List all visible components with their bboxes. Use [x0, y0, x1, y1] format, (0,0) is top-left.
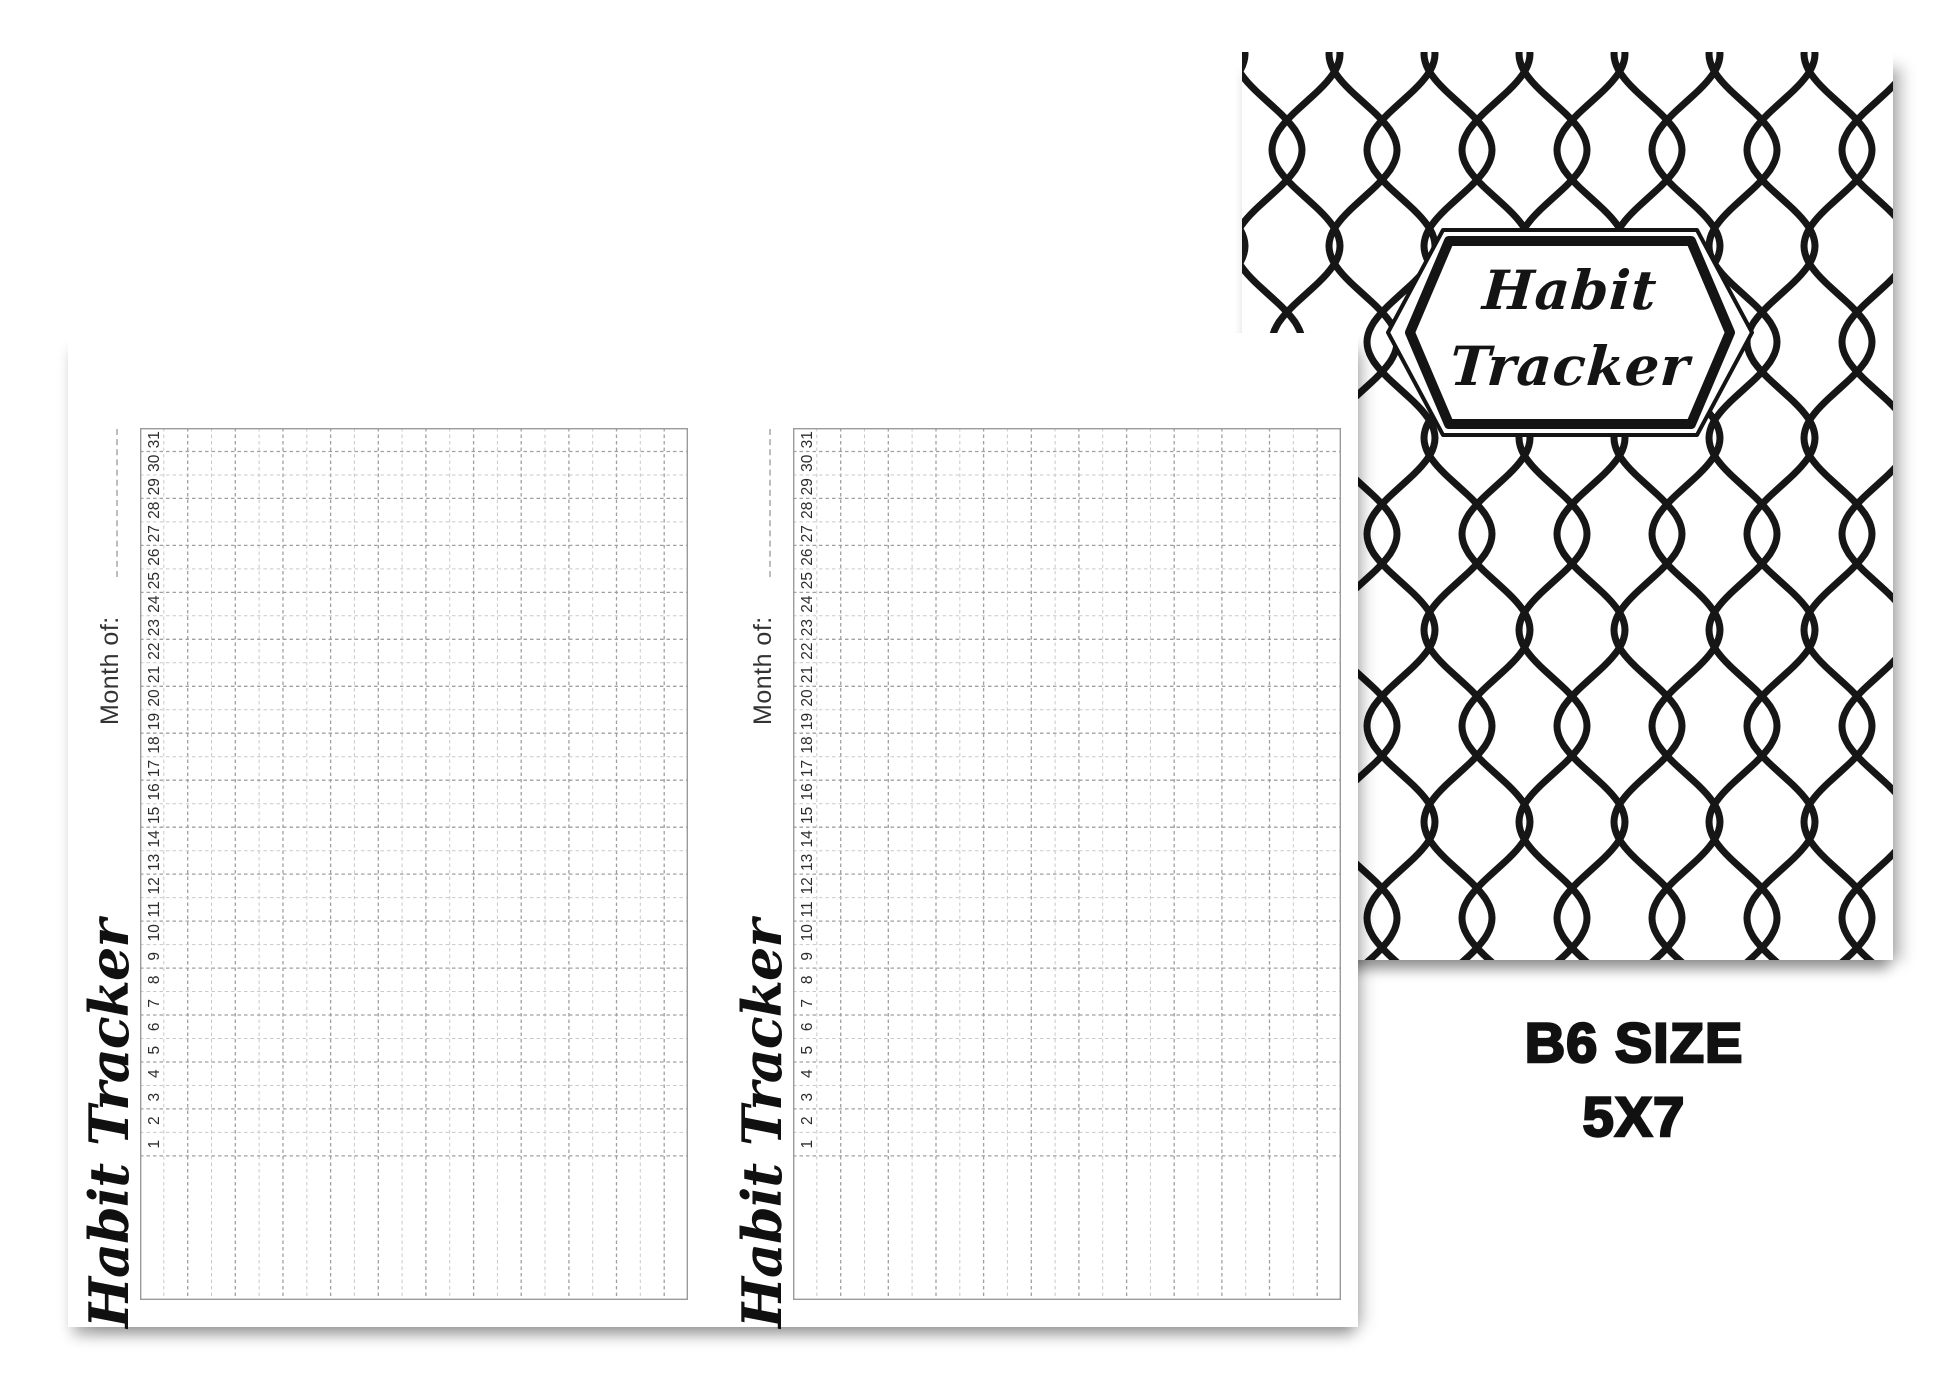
day-number: 12 [146, 877, 163, 894]
day-number: 27 [799, 525, 816, 542]
day-number: 23 [799, 619, 816, 636]
day-number: 28 [146, 502, 163, 519]
planner-sheet: Month of: 313029282726252423222120191817… [68, 333, 1358, 1327]
day-number: 28 [799, 502, 816, 519]
day-number: 25 [799, 572, 816, 589]
day-number: 13 [799, 854, 816, 871]
size-caption: B6 SIZE 5X7 [1434, 1010, 1834, 1150]
badge-title-line1: Habit [1381, 263, 1759, 317]
day-number: 27 [146, 525, 163, 542]
size-caption-line1: B6 SIZE [1434, 1010, 1834, 1076]
day-number: 11 [146, 901, 163, 917]
day-number: 20 [799, 689, 816, 707]
month-fill-in-line [769, 429, 771, 577]
day-number: 21 [146, 666, 163, 683]
month-fill-in-line [116, 429, 118, 577]
size-caption-line2: 5X7 [1434, 1084, 1834, 1150]
day-number: 19 [146, 713, 163, 730]
tracker-page-right: Month of: 313029282726252423222120191817… [721, 333, 1366, 1327]
day-number: 20 [146, 689, 163, 707]
day-number: 21 [799, 666, 816, 683]
day-number: 25 [146, 572, 163, 589]
month-label: Month of: [750, 585, 776, 725]
day-number: 29 [799, 478, 816, 495]
day-number: 14 [146, 830, 163, 848]
day-number: 17 [799, 760, 816, 777]
page-script-title: Habit Tracker [716, 938, 808, 1328]
day-number: 18 [146, 736, 163, 753]
day-number: 16 [146, 783, 163, 800]
day-number: 22 [146, 642, 163, 659]
day-number: 22 [799, 642, 816, 659]
day-number: 31 [799, 431, 816, 448]
product-mockup-canvas: { "cover": { "badge_title_line1": "Habit… [0, 0, 1946, 1391]
day-number: 26 [799, 548, 816, 565]
cover-badge: Habit Tracker [1383, 225, 1757, 440]
badge-title-line2: Tracker [1381, 339, 1759, 393]
tracker-page-left: Month of: 313029282726252423222120191817… [68, 333, 713, 1327]
day-number: 11 [799, 901, 816, 917]
day-number: 17 [146, 760, 163, 777]
day-number: 30 [799, 454, 816, 472]
day-number: 13 [146, 854, 163, 871]
day-number: 31 [146, 431, 163, 448]
day-number: 18 [799, 736, 816, 753]
day-number: 19 [799, 713, 816, 730]
page-script-title: Habit Tracker [63, 938, 155, 1328]
day-number: 15 [799, 807, 816, 824]
day-number: 15 [146, 807, 163, 824]
day-number: 24 [799, 595, 816, 613]
day-number: 26 [146, 548, 163, 565]
day-number: 30 [146, 454, 163, 472]
day-number: 23 [146, 619, 163, 636]
habit-grid: 3130292827262524232221201918171615141312… [140, 428, 688, 1300]
habit-grid: 3130292827262524232221201918171615141312… [793, 428, 1341, 1300]
day-number: 24 [146, 595, 163, 613]
day-number: 12 [799, 877, 816, 894]
day-number: 14 [799, 830, 816, 848]
day-number: 16 [799, 783, 816, 800]
month-label: Month of: [97, 585, 123, 725]
day-number: 29 [146, 478, 163, 495]
